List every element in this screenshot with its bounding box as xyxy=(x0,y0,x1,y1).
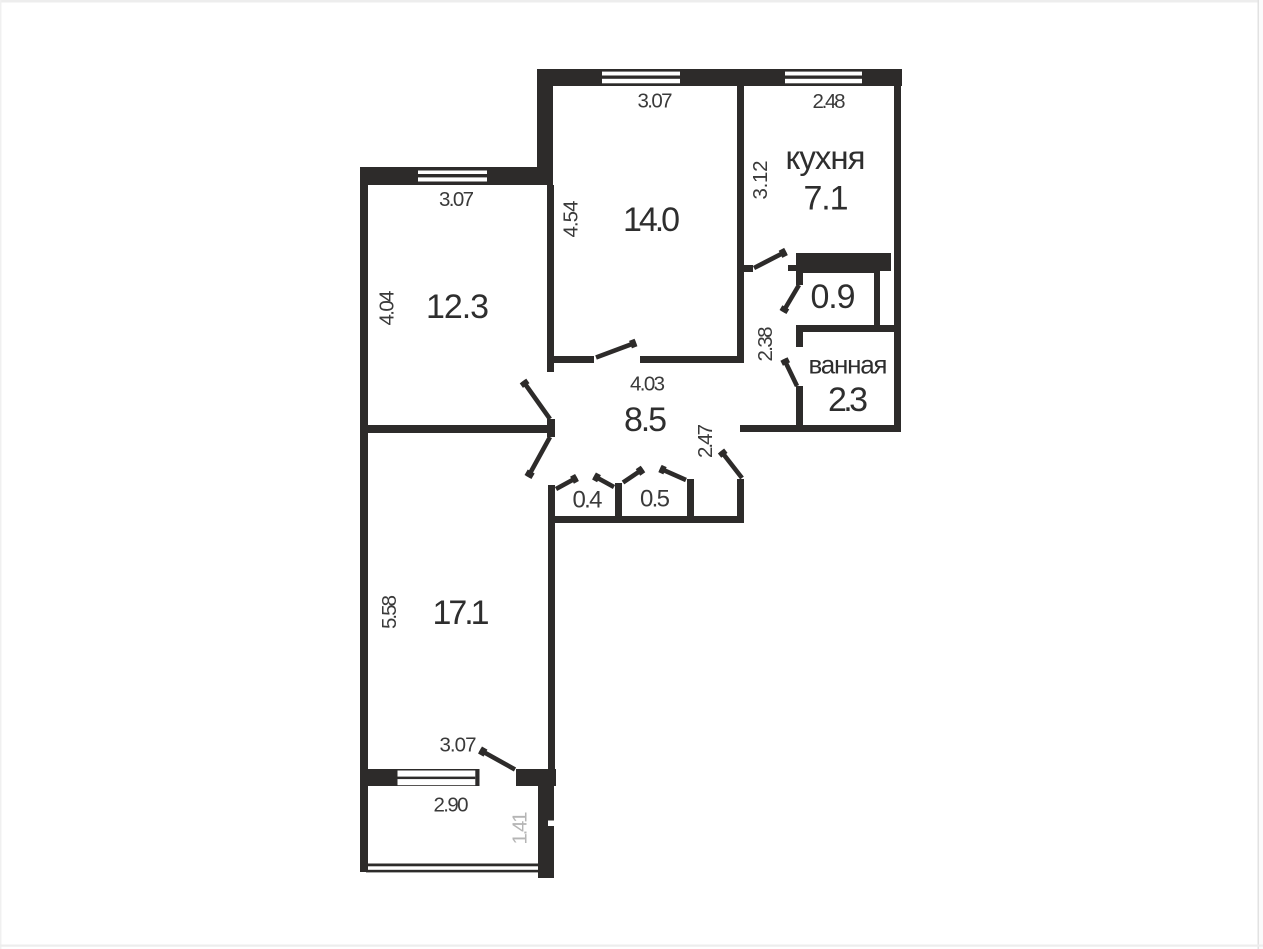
svg-text:0.5: 0.5 xyxy=(640,486,670,513)
svg-text:8.5: 8.5 xyxy=(624,401,667,439)
svg-text:7.1: 7.1 xyxy=(804,180,849,218)
svg-text:1.41: 1.41 xyxy=(509,812,532,845)
svg-text:2.48: 2.48 xyxy=(813,90,846,113)
svg-text:3.07: 3.07 xyxy=(440,734,477,757)
svg-text:3.07: 3.07 xyxy=(638,90,673,113)
svg-text:2.47: 2.47 xyxy=(694,424,717,458)
svg-text:2.90: 2.90 xyxy=(434,794,469,817)
svg-text:2.38: 2.38 xyxy=(754,327,777,362)
svg-text:кухня: кухня xyxy=(786,139,866,176)
svg-text:0.9: 0.9 xyxy=(811,278,856,316)
svg-text:17.1: 17.1 xyxy=(433,594,490,632)
svg-text:4.04: 4.04 xyxy=(376,291,399,326)
svg-text:4.03: 4.03 xyxy=(630,373,665,396)
svg-text:0.4: 0.4 xyxy=(573,487,603,514)
svg-text:4.54: 4.54 xyxy=(560,201,583,238)
svg-text:14.0: 14.0 xyxy=(623,201,680,239)
svg-text:3.12: 3.12 xyxy=(749,161,772,200)
svg-text:2.3: 2.3 xyxy=(828,381,868,419)
svg-text:3.07: 3.07 xyxy=(439,188,474,211)
svg-text:12.3: 12.3 xyxy=(426,288,489,326)
svg-text:5.58: 5.58 xyxy=(378,595,401,629)
svg-text:ванная: ванная xyxy=(809,350,888,380)
